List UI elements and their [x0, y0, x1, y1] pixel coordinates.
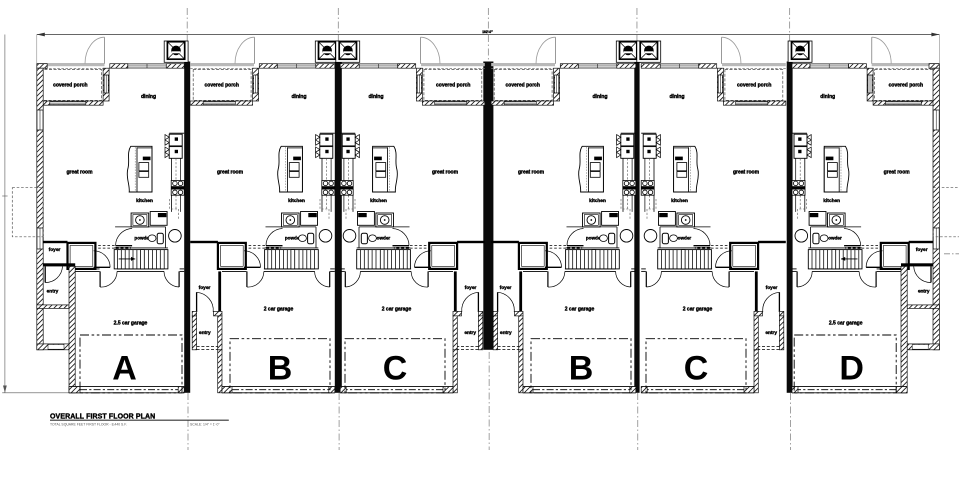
svg-text:dining: dining [820, 94, 835, 100]
svg-text:2 car garage: 2 car garage [264, 307, 294, 313]
svg-text:covered porch: covered porch [737, 82, 771, 88]
svg-text:162'-0": 162'-0" [482, 30, 493, 34]
svg-text:OVERALL FIRST FLOOR PLAN: OVERALL FIRST FLOOR PLAN [50, 414, 155, 421]
svg-text:entry: entry [500, 330, 512, 336]
svg-text:dining: dining [593, 94, 608, 100]
svg-text:2 car garage: 2 car garage [683, 307, 713, 313]
svg-text:A: A [112, 350, 137, 388]
svg-text:kitchen: kitchen [136, 198, 153, 204]
svg-text:foyer: foyer [916, 247, 928, 253]
svg-text:covered porch: covered porch [205, 82, 239, 88]
svg-text:B: B [569, 350, 594, 388]
svg-text:covered porch: covered porch [53, 82, 87, 88]
svg-text:dining: dining [369, 94, 384, 100]
svg-text:entry: entry [47, 289, 59, 295]
svg-text:foyer: foyer [766, 285, 778, 291]
svg-text:great room: great room [66, 170, 93, 176]
svg-text:great room: great room [518, 170, 545, 176]
svg-text:SCALE: 1/4" = 1'-0": SCALE: 1/4" = 1'-0" [190, 422, 220, 426]
svg-text:foyer: foyer [199, 285, 211, 291]
svg-text:covered porch: covered porch [889, 82, 923, 88]
svg-text:dining: dining [292, 94, 307, 100]
svg-text:D: D [839, 350, 864, 388]
svg-text:2 car garage: 2 car garage [565, 307, 595, 313]
svg-text:2.5 car garage: 2.5 car garage [114, 321, 148, 327]
svg-text:dining: dining [670, 94, 685, 100]
svg-text:entry: entry [464, 330, 476, 336]
svg-text:C: C [383, 350, 408, 388]
svg-text:B: B [268, 350, 293, 388]
svg-text:great room: great room [884, 170, 911, 176]
svg-text:great room: great room [733, 170, 760, 176]
svg-text:C: C [684, 350, 709, 388]
svg-text:kitchen: kitchen [671, 198, 688, 204]
svg-text:kitchen: kitchen [589, 198, 606, 204]
svg-text:TOTAL SQUARE FEET FIRST FLOOR: TOTAL SQUARE FEET FIRST FLOOR - 8,440 S.… [50, 422, 127, 426]
svg-text:2 car garage: 2 car garage [382, 307, 412, 313]
svg-text:kitchen: kitchen [823, 198, 840, 204]
svg-text:kitchen: kitchen [370, 198, 387, 204]
svg-text:covered porch: covered porch [506, 82, 540, 88]
svg-text:entry: entry [918, 289, 930, 295]
svg-text:entry: entry [765, 330, 777, 336]
svg-text:great room: great room [217, 170, 244, 176]
svg-text:foyer: foyer [465, 285, 477, 291]
svg-text:dining: dining [141, 94, 156, 100]
svg-text:foyer: foyer [500, 285, 512, 291]
svg-text:entry: entry [199, 330, 211, 336]
svg-text:2.5 car garage: 2.5 car garage [829, 321, 863, 327]
svg-text:kitchen: kitchen [288, 198, 305, 204]
svg-text:foyer: foyer [49, 247, 61, 253]
svg-text:covered porch: covered porch [436, 82, 470, 88]
svg-text:great room: great room [432, 170, 459, 176]
